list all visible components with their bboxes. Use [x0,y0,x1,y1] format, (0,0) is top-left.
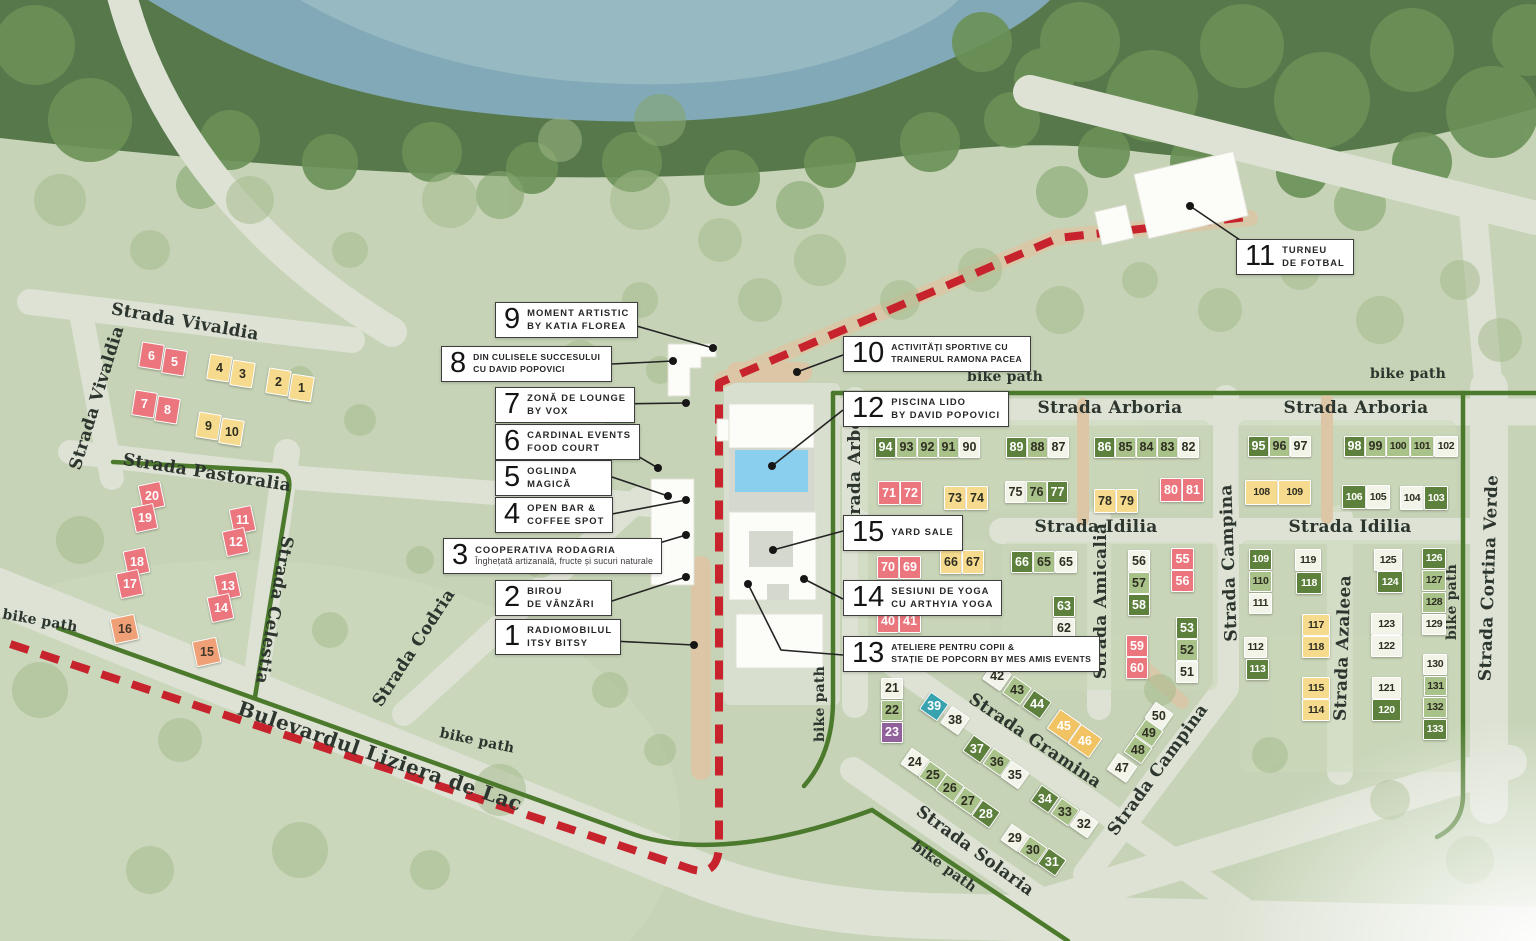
lot-87: 87 [1048,437,1069,458]
lot-number: 124 [1382,577,1399,588]
lot-101: 101 [1410,436,1434,457]
callout-label: ZONĂ DE LOUNGEBY VOX [527,392,626,417]
lot-number: 101 [1414,441,1431,452]
street-label: Strada Arboria [1284,398,1429,418]
lot-number: 118 [1301,578,1317,589]
callout-4: 4OPEN BAR &COFFEE SPOT [495,497,613,533]
callout-number: 12 [852,395,884,423]
lot-number: 22 [885,704,899,717]
lot-109: 109 [1249,549,1272,570]
lot-number: 34 [1038,793,1052,806]
lot-number: 16 [118,623,132,636]
callout-label: OGLINDAMAGICĂ [527,465,577,490]
lot-number: 60 [1130,662,1144,675]
street-label: Strada Idilia [1288,517,1411,537]
lot-number: 10 [225,426,239,439]
lot-number: 32 [1077,818,1091,831]
lot-8: 8 [154,395,181,424]
lot-number: 24 [908,756,922,769]
lot-93: 93 [896,437,917,458]
lot-number: 7 [141,398,148,411]
lot-21: 21 [881,678,903,699]
lot-number: 76 [1030,486,1044,499]
callout-1: 1RADIOMOBILULITSY BITSY [495,619,621,655]
site-map: Strada VivaldiaStrada VivaldiaStrada Pas… [0,0,1536,941]
lot-102: 102 [1434,436,1458,457]
callout-number: 2 [504,584,520,612]
lot-number: 2 [275,376,282,389]
lot-56: 56 [1171,570,1194,592]
lot-number: 72 [904,487,918,500]
lot-number: 45 [1057,720,1071,733]
lot-number: 49 [1142,727,1156,740]
lot-number: 70 [881,561,895,574]
lot-112: 112 [1244,637,1267,658]
callout-number: 15 [852,519,884,547]
callout-label: COOPERATIVA RODAGRIAÎnghețată artizanală… [475,544,653,568]
lot-23: 23 [881,722,903,743]
lot-67: 67 [962,550,984,574]
lot-16: 16 [110,614,140,645]
lot-number: 3 [239,368,246,381]
lot-number: 119 [1300,555,1316,566]
lot-115: 115 [1302,677,1330,699]
callout-number: 6 [504,428,520,456]
lot-number: 123 [1378,619,1395,630]
lot-number: 80 [1164,484,1178,497]
lot-number: 109 [1252,554,1269,565]
lot-123: 123 [1371,613,1402,635]
lot-99: 99 [1365,436,1386,457]
lot-number: 59 [1130,640,1144,653]
lot-number: 43 [1010,684,1024,697]
callout-label: BIROUDE VÂNZĂRI [527,585,594,610]
lot-number: 40 [881,615,895,628]
lot-103: 103 [1424,486,1448,510]
callout-11: 11TURNEUDE FOTBAL [1236,239,1354,275]
lot-127: 127 [1422,570,1446,591]
callout-3: 3COOPERATIVA RODAGRIAÎnghețată artizanal… [443,538,662,574]
lot-number: 94 [879,441,893,454]
lot-number: 102 [1438,441,1455,452]
pool-building [729,404,814,448]
lot-number: 51 [1180,666,1194,679]
callout-7: 7ZONĂ DE LOUNGEBY VOX [495,387,635,423]
lot-65: 65 [1033,551,1055,573]
pool-water [735,450,808,492]
lot-number: 65 [1037,556,1051,569]
lot-66: 66 [940,550,962,574]
lot-number: 5 [171,356,178,369]
lot-77: 77 [1047,481,1068,503]
lot-65: 65 [1055,551,1077,573]
lot-number: 106 [1346,492,1363,503]
lot-number: 35 [1008,769,1022,782]
lot-number: 83 [1161,441,1175,454]
lot-94: 94 [875,437,896,458]
lot-number: 38 [948,714,962,727]
lot-number: 104 [1404,493,1421,504]
callout-9: 9MOMENT ARTISTICBY KATIA FLOREA [495,302,638,338]
lot-104: 104 [1400,486,1424,510]
lot-number: 55 [1176,553,1190,566]
callout-number: 4 [504,501,520,529]
lot-number: 128 [1426,597,1443,608]
callout-6: 6CARDINAL EVENTSFOOD COURT [495,424,640,460]
lot-90: 90 [959,437,980,458]
lot-105: 105 [1366,485,1390,509]
lot-number: 19 [138,512,152,525]
lot-number: 133 [1427,724,1444,735]
lot-number: 71 [882,487,896,500]
lot-number: 57 [1132,577,1146,590]
callout-number: 5 [504,464,520,492]
callout-label: YARD SALE [891,526,953,539]
lot-number: 53 [1180,622,1194,635]
lot-number: 90 [963,441,977,454]
callout-15: 15YARD SALE [843,515,963,551]
lot-number: 132 [1427,702,1444,713]
lot-number: 11 [236,514,249,527]
lot-number: 88 [1031,441,1045,454]
lot-number: 6 [148,350,155,363]
lot-number: 89 [1010,441,1024,454]
callout-label: CARDINAL EVENTSFOOD COURT [527,429,631,454]
lot-number: 111 [1253,598,1268,609]
lot-number: 130 [1427,659,1444,670]
lot-133: 133 [1423,719,1447,740]
callout-number: 14 [852,584,884,612]
lot-number: 66 [1015,556,1029,569]
lot-number: 12 [229,536,243,549]
lot-number: 129 [1426,619,1443,630]
lot-number: 74 [970,492,984,505]
lot-91: 91 [938,437,959,458]
lot-number: 14 [214,602,228,615]
lot-78: 78 [1094,489,1116,513]
lot-number: 113 [1249,664,1265,675]
lot-number: 46 [1078,735,1092,748]
callout-label: OPEN BAR &COFFEE SPOT [527,502,604,527]
lot-69: 69 [899,556,921,579]
lot-number: 87 [1052,441,1066,454]
bike-path-label: bike path [1444,564,1460,640]
lot-number: 125 [1380,555,1397,566]
lot-number: 48 [1131,744,1145,757]
callout-13: 13ATELIERE PENTRU COPII &STAȚIE DE POPCO… [843,636,1100,672]
lot-66: 66 [1011,551,1033,573]
lot-9: 9 [195,411,222,440]
lot-118: 118 [1296,572,1322,594]
lot-84: 84 [1136,437,1157,458]
lot-number: 42 [990,670,1004,683]
lot-117: 117 [1302,614,1330,636]
lot-number: 63 [1057,600,1071,613]
lot-number: 58 [1132,599,1146,612]
lot-10: 10 [218,417,245,446]
lot-number: 65 [1059,556,1073,569]
lot-83: 83 [1157,437,1178,458]
bike-path-label: bike path [812,666,828,742]
lot-51: 51 [1176,661,1198,683]
lot-number: 110 [1252,576,1268,587]
callout-14: 14SESIUNI DE YOGACU ARTHYIA YOGA [843,580,1002,616]
lot-92: 92 [917,437,938,458]
lot-number: 73 [948,492,962,505]
lot-15: 15 [192,637,222,668]
lot-number: 44 [1030,698,1044,711]
lot-7: 7 [131,389,158,418]
lot-76: 76 [1026,481,1047,503]
lot-109: 109 [1278,480,1311,505]
callout-label: ATELIERE PENTRU COPII &STAȚIE DE POPCORN… [891,642,1091,665]
lot-131: 131 [1424,676,1447,696]
bike-path-label: bike path [1370,366,1446,382]
lot-57: 57 [1128,572,1150,594]
callout-number: 7 [504,391,520,419]
lot-number: 100 [1390,441,1407,452]
lot-86: 86 [1094,437,1115,458]
lot-number: 47 [1115,762,1129,775]
callout-label: SESIUNI DE YOGACU ARTHYIA YOGA [891,585,993,610]
lot-111: 111 [1249,593,1272,614]
callout-number: 11 [1245,243,1275,271]
lot-122: 122 [1371,635,1402,657]
lot-number: 21 [885,682,899,695]
lot-number: 69 [903,561,917,574]
lot-80: 80 [1160,478,1182,502]
lot-number: 8 [164,404,171,417]
lot-number: 18 [130,556,144,569]
callout-number: 8 [450,350,466,378]
street-label: Strada Arboria [1038,398,1183,418]
lot-number: 117 [1308,620,1324,631]
lot-74: 74 [966,486,988,510]
lot-124: 124 [1377,571,1403,593]
callout-number: 13 [852,640,884,668]
lot-71: 71 [878,481,900,505]
lot-number: 127 [1426,575,1443,586]
lot-3: 3 [229,359,256,388]
lot-number: 81 [1186,484,1200,497]
lot-number: 62 [1057,622,1071,635]
lot-number: 82 [1182,441,1196,454]
lot-72: 72 [900,481,922,505]
callout-number: 10 [852,340,884,368]
lot-97: 97 [1290,436,1311,457]
lot-73: 73 [944,486,966,510]
lot-number: 36 [990,756,1004,769]
lot-number: 120 [1378,705,1395,716]
lot-126: 126 [1422,548,1446,569]
lot-2: 2 [265,367,292,396]
lot-132: 132 [1423,697,1447,718]
lot-number: 27 [961,795,975,808]
lot-108: 108 [1245,480,1278,505]
callout-12: 12PISCINA LIDOBY DAVID POPOVICI [843,391,1009,427]
lot-number: 28 [979,808,993,821]
lot-number: 50 [1152,710,1166,723]
lot-number: 30 [1026,844,1040,857]
lot-number: 26 [943,782,957,795]
lot-129: 129 [1422,614,1446,635]
lot-number: 66 [944,556,958,569]
lot-number: 67 [966,556,980,569]
callout-label: MOMENT ARTISTICBY KATIA FLOREA [527,307,629,332]
lot-70: 70 [877,556,899,579]
lot-number: 56 [1132,555,1146,568]
lot-53: 53 [1176,617,1198,639]
callout-label: ACTIVITĂȚI SPORTIVE CUTRAINERUL RAMONA P… [891,342,1022,365]
lot-59: 59 [1126,635,1148,657]
lot-98: 98 [1344,436,1365,457]
lot-number: 86 [1098,441,1112,454]
lot-number: 25 [926,769,940,782]
lot-number: 118 [1308,642,1324,653]
lot-number: 92 [921,441,935,454]
lot-number: 122 [1378,641,1395,652]
lot-55: 55 [1171,548,1194,570]
lot-56: 56 [1128,550,1150,572]
lot-106: 106 [1342,485,1366,509]
lot-79: 79 [1116,489,1138,513]
lot-number: 115 [1308,683,1324,694]
callout-2: 2BIROUDE VÂNZĂRI [495,580,612,616]
callout-label: RADIOMOBILULITSY BITSY [527,624,612,649]
lot-88: 88 [1027,437,1048,458]
lot-number: 108 [1253,487,1270,498]
lot-number: 9 [205,420,212,433]
callout-5: 5OGLINDAMAGICĂ [495,460,612,496]
lot-number: 39 [927,700,941,713]
lot-number: 56 [1176,575,1190,588]
lot-130: 130 [1423,654,1447,675]
lot-number: 85 [1119,441,1133,454]
lot-4: 4 [206,353,233,382]
lot-number: 96 [1273,440,1287,453]
callout-number: 1 [504,623,520,651]
lot-number: 112 [1247,642,1263,653]
lot-6: 6 [138,341,165,370]
lot-110: 110 [1249,571,1272,592]
lot-125: 125 [1374,549,1402,571]
lot-82: 82 [1178,437,1199,458]
lot-number: 13 [221,580,235,593]
lot-22: 22 [881,700,903,721]
lot-number: 31 [1045,856,1059,869]
lot-number: 105 [1370,492,1387,503]
lot-number: 103 [1428,493,1445,504]
callout-label: PISCINA LIDOBY DAVID POPOVICI [891,396,1000,421]
callout-label: TURNEUDE FOTBAL [1282,244,1345,269]
lot-100: 100 [1386,436,1410,457]
lot-number: 126 [1426,553,1443,564]
lot-number: 98 [1348,440,1362,453]
callout-8: 8DIN CULISELE SUCCESULUICU DAVID POPOVIC… [441,346,612,382]
lot-number: 95 [1252,440,1266,453]
lot-52: 52 [1176,639,1198,661]
lot-number: 97 [1294,440,1308,453]
lot-120: 120 [1372,699,1401,721]
lot-number: 20 [145,490,159,503]
lot-number: 91 [942,441,956,454]
lot-128: 128 [1422,592,1446,613]
lot-5: 5 [161,347,188,376]
lot-number: 29 [1008,832,1022,845]
lot-number: 75 [1009,486,1023,499]
lot-60: 60 [1126,657,1148,679]
lot-number: 77 [1051,486,1065,499]
lot-81: 81 [1182,478,1204,502]
callout-number: 9 [504,306,520,334]
lot-number: 4 [216,362,223,375]
lot-number: 41 [903,615,917,628]
lot-113: 113 [1246,659,1269,680]
lot-number: 37 [970,743,984,756]
lot-number: 23 [885,726,899,739]
lot-85: 85 [1115,437,1136,458]
lot-number: 52 [1180,644,1194,657]
lot-number: 121 [1378,683,1395,694]
lot-number: 93 [900,441,914,454]
lot-number: 109 [1286,487,1303,498]
lot-118: 118 [1302,636,1330,658]
lot-number: 114 [1308,705,1324,716]
lot-75: 75 [1005,481,1026,503]
lot-63: 63 [1053,596,1075,617]
lot-number: 79 [1120,495,1134,508]
lot-89: 89 [1006,437,1027,458]
lot-96: 96 [1269,436,1290,457]
lot-number: 99 [1369,440,1383,453]
lot-number: 17 [123,578,137,591]
workshop-building [736,614,823,668]
lot-121: 121 [1372,677,1401,699]
lot-119: 119 [1295,549,1321,571]
callout-number: 3 [452,542,468,570]
lot-number: 15 [200,646,214,659]
lot-114: 114 [1302,699,1330,721]
lot-number: 33 [1058,806,1072,819]
lot-95: 95 [1248,436,1269,457]
lot-1: 1 [288,373,315,402]
lot-number: 84 [1140,441,1154,454]
lot-number: 78 [1098,495,1112,508]
callout-10: 10ACTIVITĂȚI SPORTIVE CUTRAINERUL RAMONA… [843,336,1031,372]
callout-label: DIN CULISELE SUCCESULUICU DAVID POPOVICI [473,352,600,375]
lot-number: 131 [1427,681,1444,692]
lot-58: 58 [1128,594,1150,616]
lot-number: 1 [298,382,305,395]
